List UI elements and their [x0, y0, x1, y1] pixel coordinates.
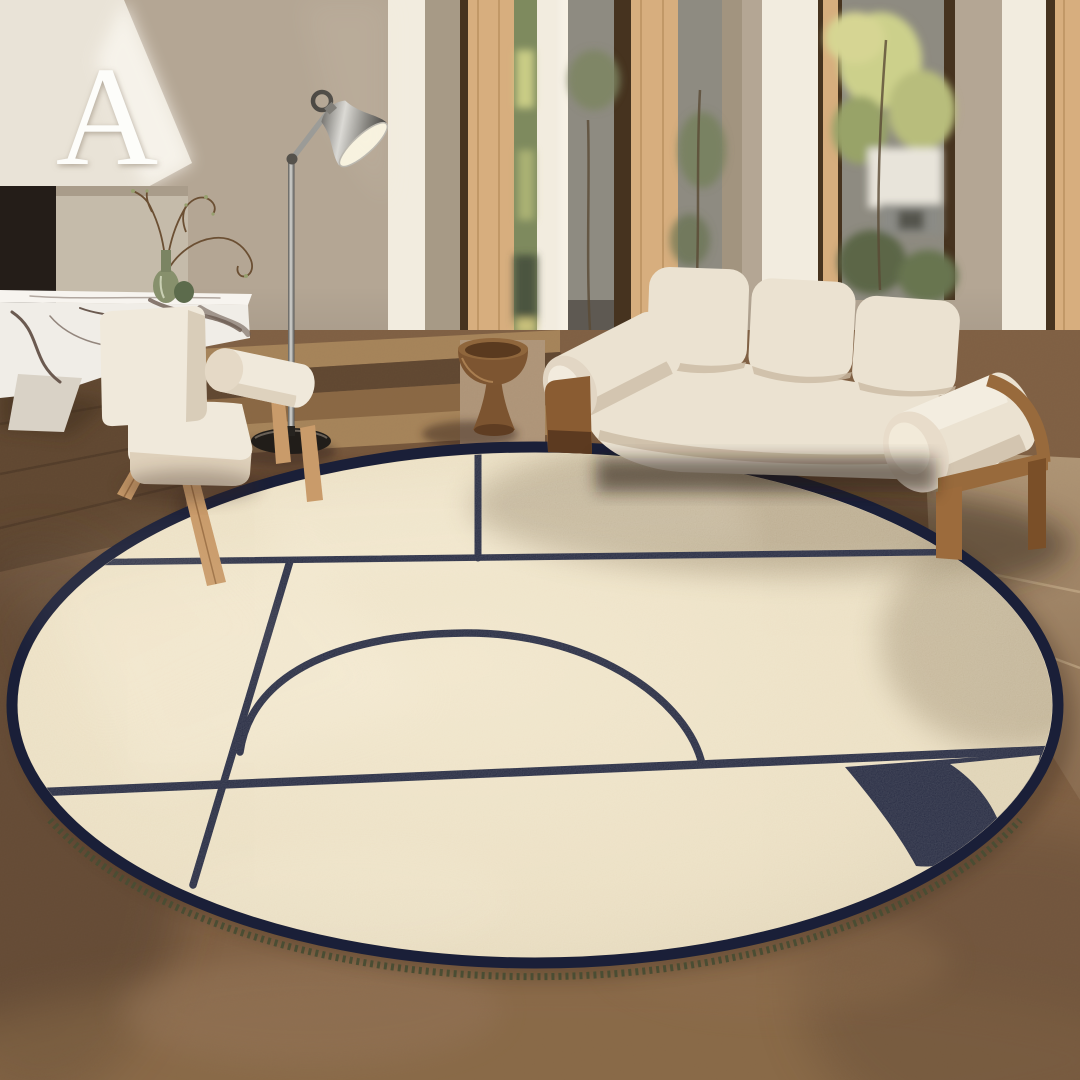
pilaster — [762, 0, 818, 312]
chair-backrest-side-shade — [186, 310, 207, 422]
small-green-vessel — [174, 281, 194, 303]
pilaster — [388, 0, 425, 352]
sofa-wood-rear-leg — [1028, 458, 1046, 550]
glass-vase — [153, 269, 179, 303]
glass-vase-neck — [161, 250, 171, 272]
pilaster-sun-edge — [556, 0, 568, 375]
window-frame — [818, 0, 823, 308]
sofa-back-cushion — [851, 294, 961, 397]
under-sofa-darkness — [596, 458, 936, 492]
variant-letter-label: A — [56, 37, 159, 195]
table-foot — [474, 424, 514, 436]
sofa-back-cushion — [748, 277, 857, 380]
chair-under-shadow — [120, 470, 260, 502]
lamp-arm-joint — [287, 154, 298, 165]
living-room-product-photo: A — [0, 0, 1080, 1080]
window-reveal — [425, 0, 460, 352]
table-bowl-inner — [465, 342, 521, 358]
sofa-wood-front-leg — [936, 486, 962, 560]
window-frame — [460, 0, 468, 348]
sofa-left-leg-shade — [548, 430, 592, 454]
scene-canvas: A — [0, 0, 1080, 1080]
oak-post — [468, 0, 514, 345]
